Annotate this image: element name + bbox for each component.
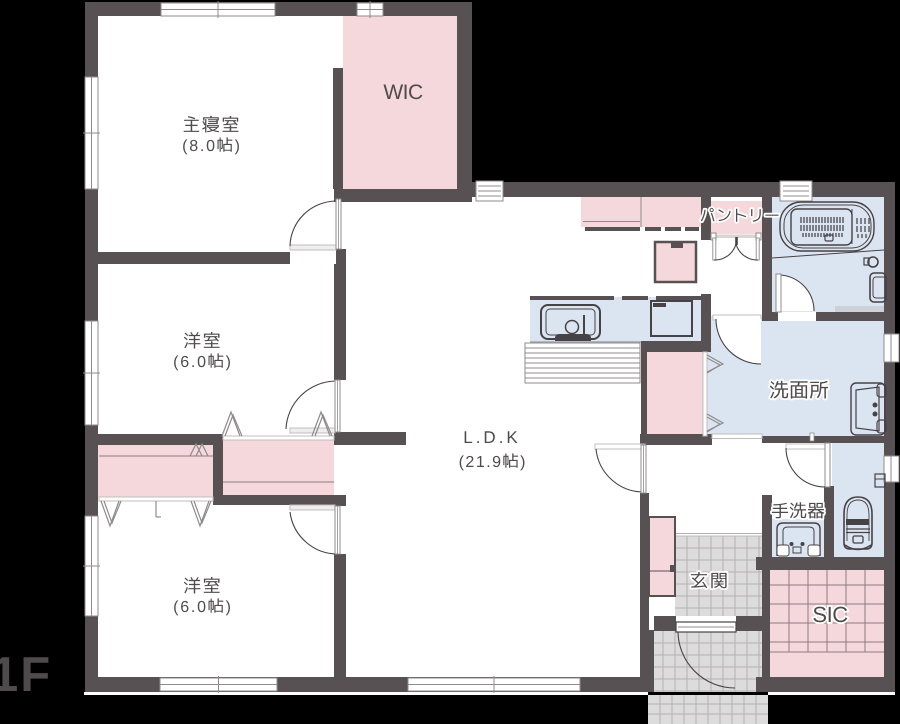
svg-text:(6.0: (6.0	[173, 599, 208, 616]
svg-text:(6.0: (6.0	[173, 354, 208, 371]
svg-text:SIC: SIC	[812, 602, 848, 627]
svg-text:): )	[226, 354, 231, 371]
svg-text:(8.0: (8.0	[182, 138, 217, 155]
svg-text:L.D.K: L.D.K	[463, 428, 521, 447]
svg-text:): )	[520, 454, 525, 471]
svg-text:): )	[235, 138, 240, 155]
svg-text:1F: 1F	[0, 648, 52, 702]
svg-text:(21.9: (21.9	[459, 454, 503, 471]
svg-text:WIC: WIC	[383, 81, 423, 104]
svg-text:): )	[226, 599, 231, 616]
